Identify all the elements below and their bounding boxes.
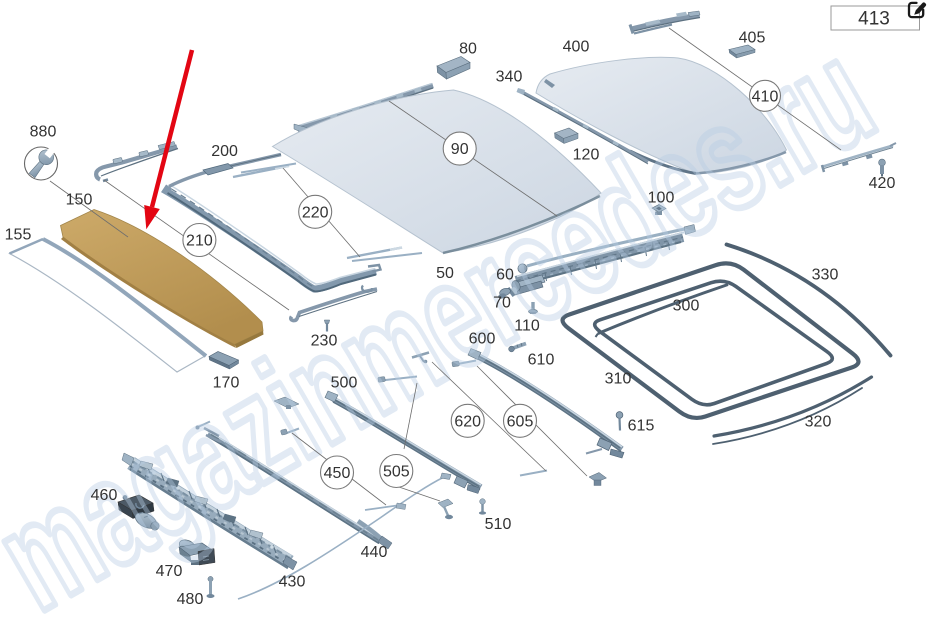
svg-text:310: 310	[605, 371, 632, 388]
svg-text:405: 405	[739, 30, 766, 47]
svg-text:470: 470	[156, 563, 183, 580]
svg-text:880: 880	[30, 124, 57, 141]
svg-text:110: 110	[514, 318, 540, 335]
svg-text:170: 170	[213, 375, 240, 392]
svg-text:150: 150	[66, 192, 93, 209]
svg-text:320: 320	[805, 414, 832, 431]
svg-text:230: 230	[311, 333, 338, 350]
svg-text:615: 615	[628, 418, 655, 435]
svg-text:220: 220	[302, 204, 329, 221]
svg-text:480: 480	[177, 591, 204, 608]
svg-text:505: 505	[383, 464, 410, 481]
svg-text:155: 155	[5, 227, 32, 244]
svg-text:400: 400	[563, 39, 590, 56]
svg-text:340: 340	[496, 69, 523, 86]
svg-text:200: 200	[211, 143, 238, 160]
svg-text:450: 450	[324, 465, 351, 482]
svg-text:300: 300	[673, 298, 700, 315]
svg-text:430: 430	[279, 574, 306, 591]
svg-text:620: 620	[454, 413, 481, 430]
svg-text:610: 610	[528, 352, 555, 369]
svg-text:330: 330	[812, 267, 839, 284]
svg-text:510: 510	[485, 516, 512, 533]
svg-text:420: 420	[869, 175, 896, 192]
svg-text:80: 80	[459, 41, 477, 58]
svg-text:100: 100	[648, 190, 675, 207]
svg-text:440: 440	[361, 544, 388, 561]
svg-text:50: 50	[436, 265, 454, 282]
svg-text:90: 90	[451, 141, 469, 158]
svg-text:210: 210	[186, 233, 213, 250]
svg-text:70: 70	[493, 295, 511, 312]
svg-text:500: 500	[331, 375, 358, 392]
svg-text:413: 413	[858, 9, 890, 30]
svg-text:410: 410	[752, 88, 779, 105]
svg-text:460: 460	[91, 487, 118, 504]
svg-text:605: 605	[507, 413, 534, 430]
svg-text:600: 600	[469, 331, 496, 348]
svg-text:120: 120	[573, 147, 600, 164]
svg-text:60: 60	[496, 267, 514, 284]
